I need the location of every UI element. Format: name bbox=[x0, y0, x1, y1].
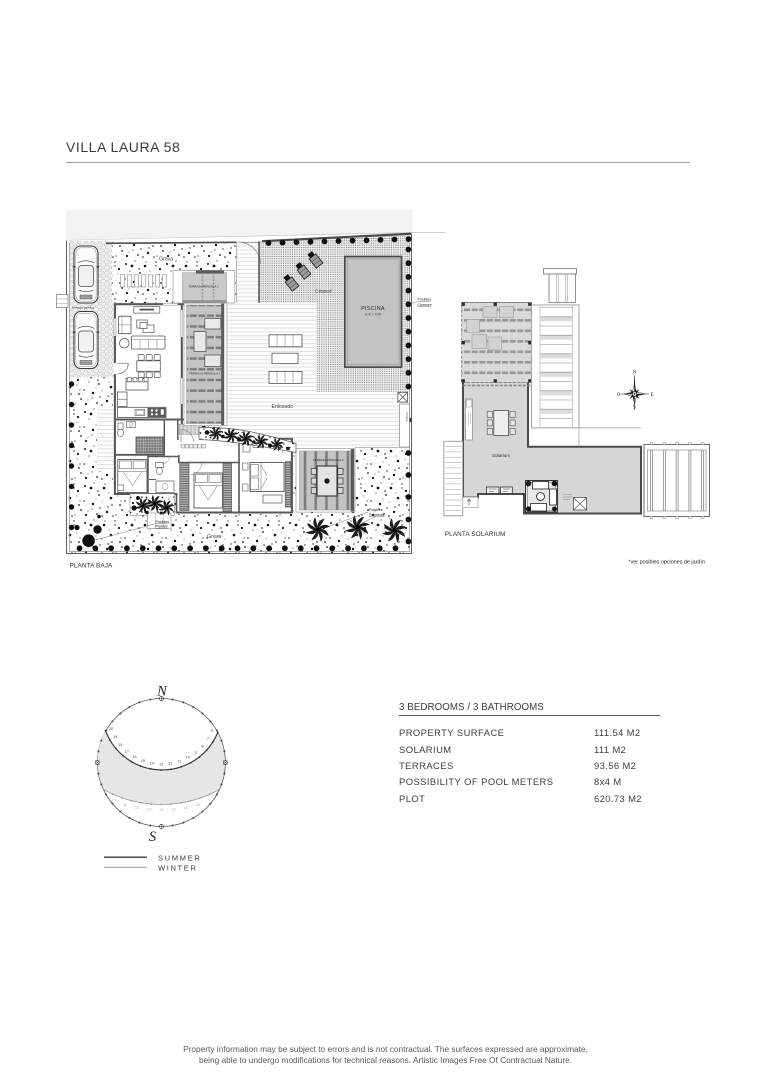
svg-text:11: 11 bbox=[184, 806, 188, 810]
svg-text:14: 14 bbox=[147, 808, 151, 812]
svg-text:Posibles: Posibles bbox=[405, 412, 409, 423]
svg-text:Cipreses: Cipreses bbox=[418, 303, 432, 307]
svg-text:18: 18 bbox=[118, 743, 122, 747]
svg-text:TERRAZA PÉRGOLA 2: TERRAZA PÉRGOLA 2 bbox=[189, 284, 220, 289]
svg-text:Césped: Césped bbox=[315, 289, 332, 295]
svg-text:SUMMER: SUMMER bbox=[158, 853, 201, 862]
svg-text:15: 15 bbox=[141, 759, 145, 763]
svg-text:Posibles: Posibles bbox=[418, 298, 432, 302]
svg-text:Enlosado: Enlosado bbox=[272, 404, 294, 410]
svg-text:PLANTA SOLARIUM: PLANTA SOLARIUM bbox=[445, 531, 506, 538]
svg-text:9: 9 bbox=[195, 751, 197, 755]
svg-text:13: 13 bbox=[159, 762, 163, 766]
svg-text:O: O bbox=[617, 393, 621, 398]
svg-text:15: 15 bbox=[135, 806, 139, 810]
svg-text:20: 20 bbox=[109, 727, 113, 731]
svg-text:Posibles: Posibles bbox=[369, 508, 383, 512]
svg-text:PISCINA: PISCINA bbox=[361, 306, 385, 312]
svg-text:TERRAZA PÉRGOLA 1: TERRAZA PÉRGOLA 1 bbox=[189, 370, 221, 375]
svg-text:17: 17 bbox=[111, 799, 115, 803]
svg-text:WINTER: WINTER bbox=[158, 863, 198, 872]
svg-text:6: 6 bbox=[211, 729, 213, 733]
svg-text:Solarium: Solarium bbox=[492, 453, 510, 458]
svg-text:14: 14 bbox=[150, 761, 154, 765]
svg-text:S: S bbox=[149, 829, 157, 845]
svg-text:N: N bbox=[633, 371, 637, 376]
svg-text:19: 19 bbox=[113, 735, 117, 739]
svg-text:17: 17 bbox=[125, 749, 129, 753]
svg-text:Palmeras: Palmeras bbox=[369, 513, 384, 517]
svg-text:Grava: Grava bbox=[159, 257, 173, 263]
svg-text:Entrada parking: Entrada parking bbox=[72, 305, 94, 309]
svg-text:S: S bbox=[633, 406, 636, 411]
svg-text:Grava: Grava bbox=[207, 534, 221, 540]
svg-text:PLANTA BAJA: PLANTA BAJA bbox=[70, 563, 114, 570]
svg-text:12: 12 bbox=[168, 762, 172, 766]
svg-text:8.00 x 4.00: 8.00 x 4.00 bbox=[365, 313, 381, 317]
svg-text:10: 10 bbox=[196, 803, 200, 807]
svg-text:7: 7 bbox=[207, 737, 209, 741]
svg-text:E: E bbox=[651, 393, 654, 398]
svg-text:TERRAZA PÉRGOLA 2: TERRAZA PÉRGOLA 2 bbox=[313, 457, 344, 462]
svg-text:16: 16 bbox=[123, 803, 127, 807]
svg-text:16: 16 bbox=[132, 755, 136, 759]
svg-text:10: 10 bbox=[186, 756, 190, 760]
svg-text:9: 9 bbox=[208, 799, 210, 803]
svg-text:12: 12 bbox=[171, 808, 175, 812]
svg-text:13: 13 bbox=[159, 808, 163, 812]
svg-text:N: N bbox=[156, 684, 168, 700]
svg-text:Posibles: Posibles bbox=[156, 520, 170, 524]
svg-text:11: 11 bbox=[177, 760, 181, 764]
svg-text:*ver posibles opciones de jard: *ver posibles opciones de jardín bbox=[629, 560, 705, 566]
svg-text:Plantas: Plantas bbox=[156, 525, 168, 529]
svg-text:8: 8 bbox=[201, 744, 203, 748]
